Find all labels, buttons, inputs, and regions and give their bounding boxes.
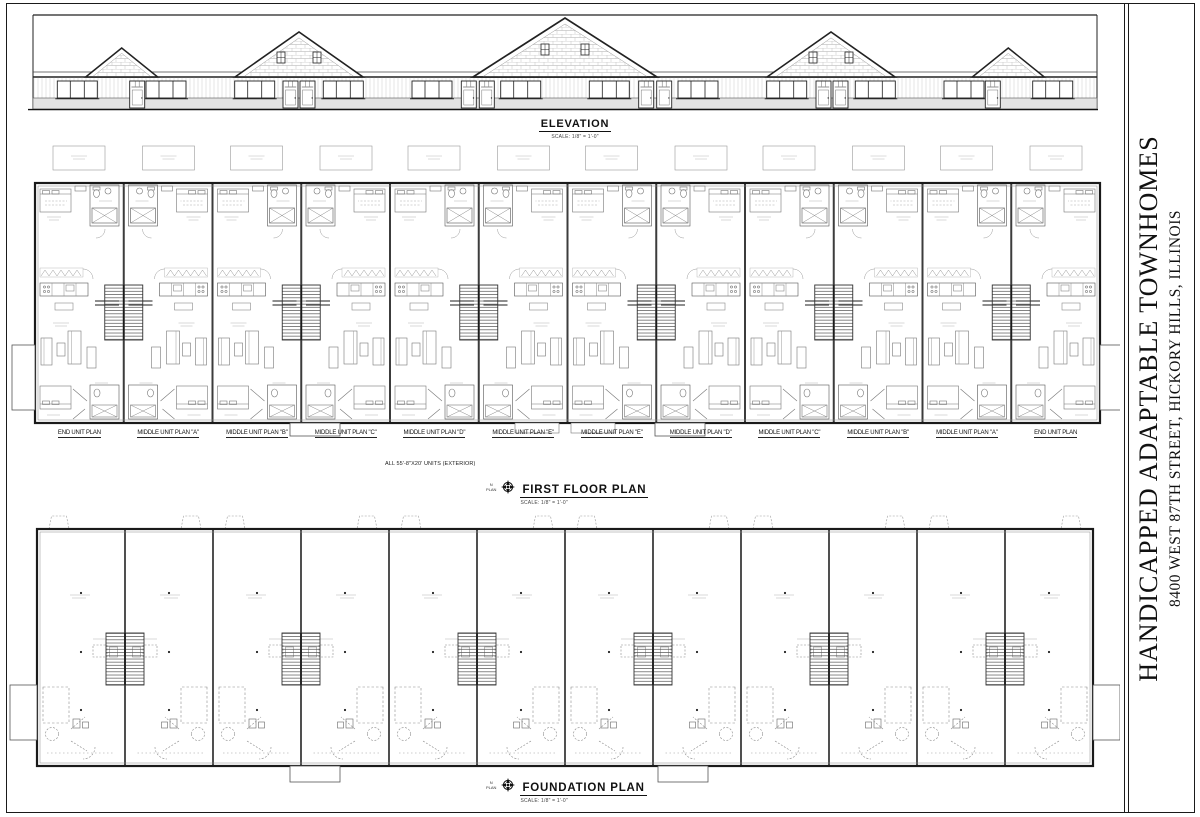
unit-label: MIDDLE UNIT PLAN "E" <box>568 430 657 436</box>
exterior-walls <box>12 183 1120 436</box>
project-address: 8400 WEST 87TH STREET, HICKORY HILLS, IL… <box>1167 4 1185 813</box>
foundation-plan-title-block: N PLAN FOUNDATION PLAN SCALE: 1/8" = 1'-… <box>486 778 647 804</box>
north-label: N PLAN <box>486 480 496 492</box>
north-arrow-icon <box>501 778 515 792</box>
elevation-title-block: ELEVATION SCALE: 1/8" = 1'-0" <box>480 114 670 140</box>
unit-label: MIDDLE UNIT PLAN "D" <box>390 430 479 436</box>
unit-label: MIDDLE UNIT PLAN "E" <box>479 430 568 436</box>
unit-label: END UNIT PLAN <box>1011 430 1100 436</box>
foundation-party-walls <box>125 529 1005 766</box>
title-block-rule <box>1124 3 1129 813</box>
foundation-plan-title: FOUNDATION PLAN <box>520 782 646 796</box>
party-walls <box>124 183 1012 423</box>
first-floor-plan-drawing <box>8 140 1120 440</box>
units-note: ALL 55'-8"X20' UNITS (EXTERIOR) <box>385 461 475 467</box>
unit-label: MIDDLE UNIT PLAN "C" <box>745 430 834 436</box>
unit-label: END UNIT PLAN <box>35 430 124 436</box>
north-arrow-icon <box>501 480 515 494</box>
unit-label: MIDDLE UNIT PLAN "B" <box>834 430 923 436</box>
project-title: HANDICAPPED ADAPTABLE TOWNHOMES <box>1134 4 1164 813</box>
elevation-scale: SCALE: 1/8" = 1'-0" <box>480 134 670 140</box>
first-floor-plan-title: FIRST FLOOR PLAN <box>520 484 648 498</box>
elevation-drawing <box>28 6 1098 118</box>
unit-label: MIDDLE UNIT PLAN "A" <box>923 430 1012 436</box>
drawing-sheet: ELEVATION SCALE: 1/8" = 1'-0" <box>0 0 1200 817</box>
unit-label: MIDDLE UNIT PLAN "A" <box>124 430 213 436</box>
unit-label: MIDDLE UNIT PLAN "B" <box>213 430 302 436</box>
north-label: N PLAN <box>486 778 496 790</box>
elevation-title: ELEVATION <box>539 118 612 132</box>
unit-label: MIDDLE UNIT PLAN "C" <box>301 430 390 436</box>
foundation-plan-scale: SCALE: 1/8" = 1'-0" <box>520 798 646 804</box>
foundation-plan-drawing <box>8 498 1120 796</box>
unit-label: MIDDLE UNIT PLAN "D" <box>656 430 745 436</box>
